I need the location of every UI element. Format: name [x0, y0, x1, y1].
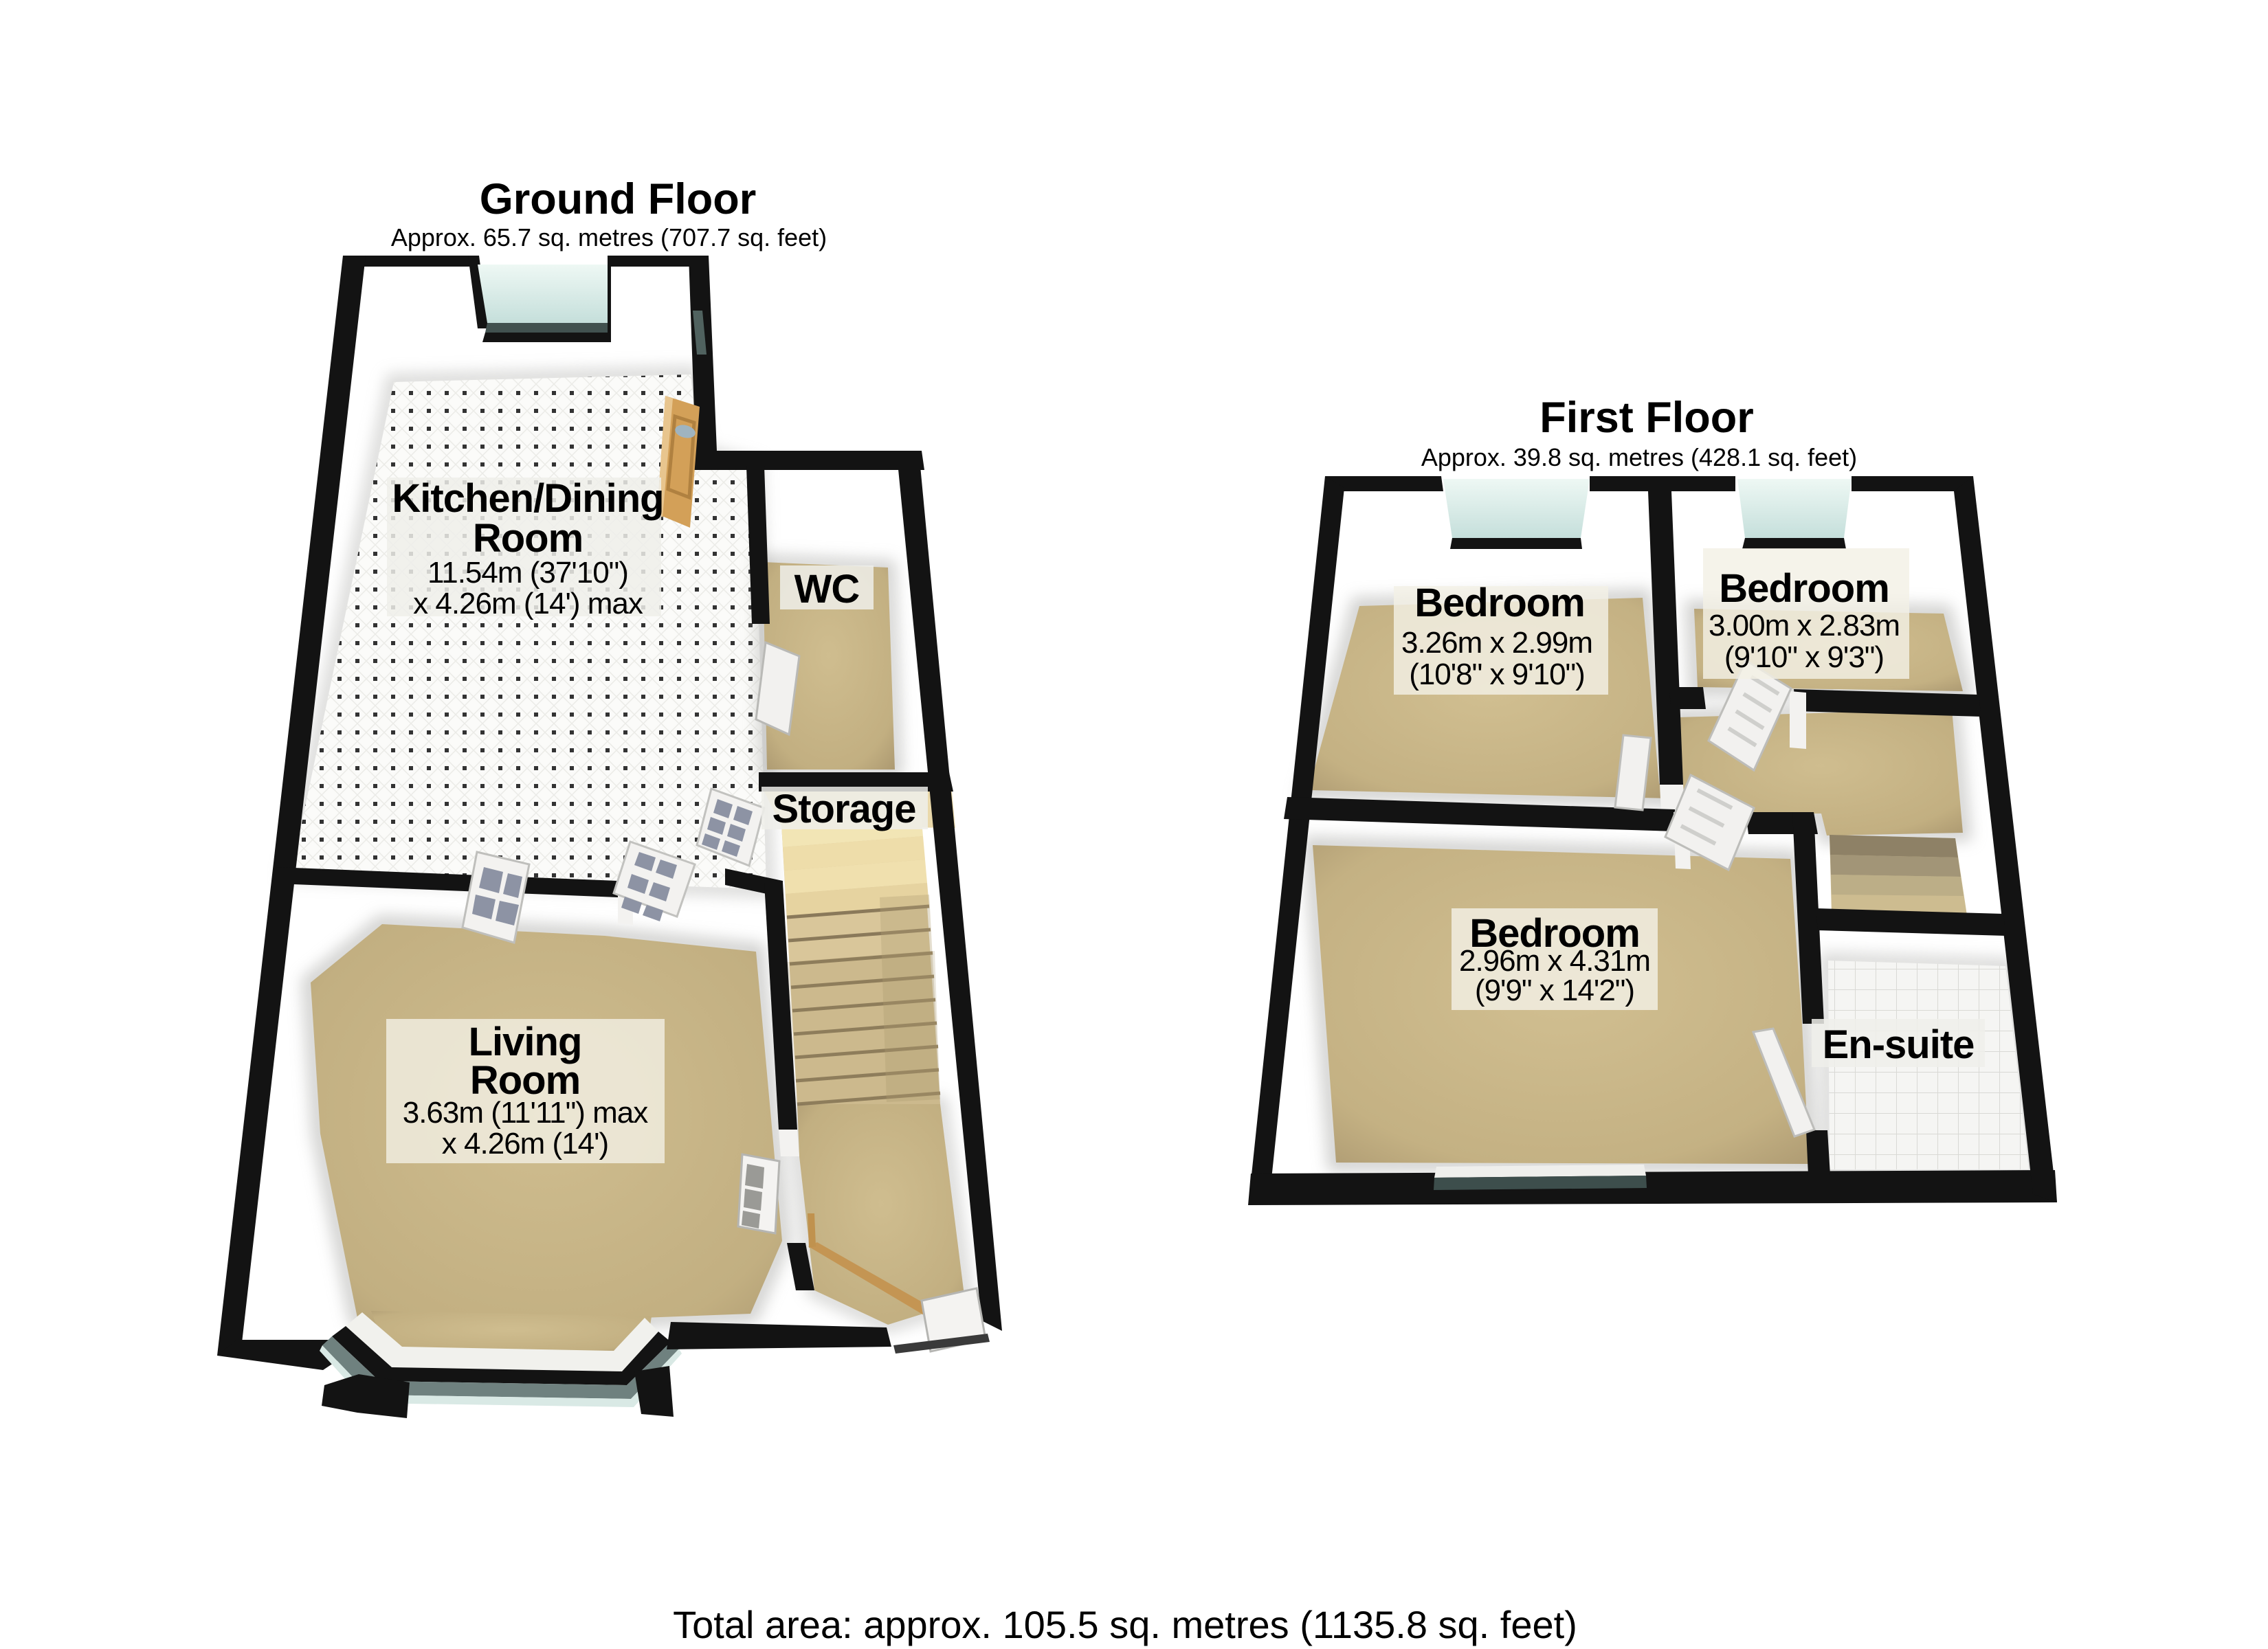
svg-text:(9'9" x 14'2"): (9'9" x 14'2") — [1475, 974, 1634, 1007]
svg-text:First Floor: First Floor — [1539, 394, 1754, 442]
svg-text:En-suite: En-suite — [1823, 1022, 1975, 1067]
svg-text:(10'8" x 9'10"): (10'8" x 9'10") — [1409, 658, 1585, 691]
svg-text:Kitchen/Dining: Kitchen/Dining — [392, 476, 663, 521]
svg-text:Total area: approx. 105.5 sq.: Total area: approx. 105.5 sq. metres (11… — [673, 1603, 1577, 1646]
svg-text:2.96m x 4.31m: 2.96m x 4.31m — [1459, 944, 1650, 978]
svg-text:3.00m x 2.83m: 3.00m x 2.83m — [1709, 609, 1900, 642]
svg-text:WC: WC — [794, 567, 860, 612]
svg-text:Approx. 65.7 sq. metres (707.7: Approx. 65.7 sq. metres (707.7 sq. feet) — [391, 223, 827, 251]
svg-text:11.54m (37'10"): 11.54m (37'10") — [427, 556, 628, 590]
svg-text:3.63m (11'11") max: 3.63m (11'11") max — [403, 1096, 649, 1130]
svg-text:Room: Room — [473, 516, 583, 561]
svg-text:x 4.26m (14') max: x 4.26m (14') max — [413, 587, 643, 620]
svg-text:Approx. 39.8 sq. metres (428.1: Approx. 39.8 sq. metres (428.1 sq. feet) — [1421, 443, 1857, 471]
svg-text:Storage: Storage — [772, 787, 916, 831]
svg-text:Bedroom: Bedroom — [1414, 581, 1585, 625]
svg-text:Bedroom: Bedroom — [1719, 566, 1889, 611]
svg-text:(9'10" x 9'3"): (9'10" x 9'3") — [1724, 640, 1884, 674]
svg-text:x 4.26m (14'): x 4.26m (14') — [442, 1127, 608, 1160]
svg-text:3.26m x 2.99m: 3.26m x 2.99m — [1401, 626, 1592, 660]
svg-text:Ground Floor: Ground Floor — [480, 175, 756, 223]
